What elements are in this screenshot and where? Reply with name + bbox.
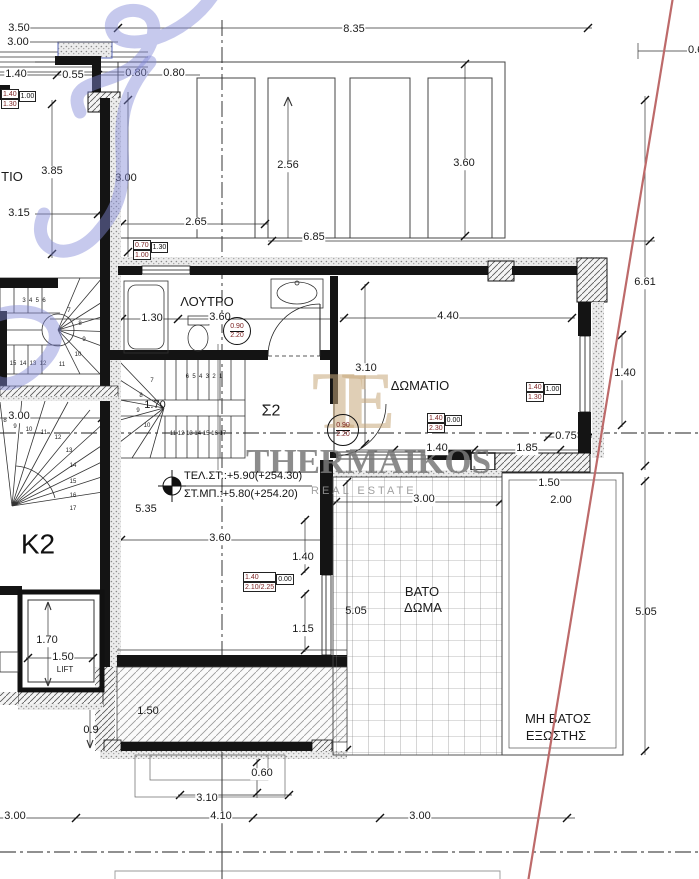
- door-height: 2.20: [336, 431, 350, 439]
- marker-height: 2.30: [427, 423, 445, 433]
- dim-080-b: 0.80: [162, 68, 185, 80]
- stair-numbers-left-top: 3 4 5 6: [22, 298, 45, 304]
- dim-310-bottom: 3.10: [195, 793, 218, 805]
- marker-width: 1.40: [526, 382, 544, 392]
- stair-number: 8: [139, 393, 142, 399]
- dim-505-right: 5.05: [634, 607, 657, 619]
- stair-number: 8: [78, 321, 81, 327]
- dim-360-roof: 3.60: [452, 158, 475, 170]
- opening-marker-1: 1.401.30 1.00: [1, 89, 36, 109]
- dim-300-wall: 3.00: [114, 173, 137, 185]
- dim-185: 1.85: [515, 443, 538, 455]
- dim-140-window: 1.40: [613, 368, 636, 380]
- dim-300-bottom-right: 3.00: [408, 811, 431, 823]
- marker-width: 1.40: [1, 89, 19, 99]
- dim-300-stair: 3.00: [7, 411, 30, 423]
- dim-top-span: 8.35: [342, 24, 365, 36]
- door-tag-bath: 0.90 2.20: [223, 317, 251, 345]
- balcony-label-2: ΕΞΩΣΤΗΣ: [525, 729, 587, 743]
- level-line-1: ΤΕΛ.ΣΤ.:+5.90(+254.30): [184, 471, 302, 482]
- dim-300-terrace: 3.00: [412, 494, 435, 506]
- stair-number: 9: [13, 424, 16, 430]
- stair-number: 8: [3, 418, 6, 424]
- marker-sill: 1.00: [19, 91, 37, 102]
- stair-label: Σ2: [261, 404, 282, 421]
- dim-350: 3.50: [7, 23, 30, 35]
- dim-090: 0.9: [82, 725, 99, 737]
- marker-sill: 1.30: [151, 242, 169, 253]
- brand-watermark-subtitle: REAL ESTATE: [311, 486, 417, 497]
- dim-310: 3.10: [354, 363, 377, 375]
- stair-number: 10: [26, 427, 33, 433]
- balcony-label-1: ΜΗ ΒΑΤΟΣ: [524, 712, 592, 726]
- floor-plan-canvas: TE THERMAIKOS REAL ESTATE 8.35 3.50 3.00…: [0, 0, 699, 879]
- stair-number: 16: [70, 493, 77, 499]
- stair-number: 15: [70, 479, 77, 485]
- marker-width: 0.70: [133, 240, 151, 250]
- stair-number: 17: [70, 506, 77, 512]
- dim-150-balcony: 1.50: [537, 478, 560, 490]
- marker-width: 1.40: [243, 572, 276, 582]
- dim-06-right: 0.6: [687, 45, 699, 57]
- toilet: [188, 316, 209, 325]
- marker-height: 2.10/2.25: [243, 582, 276, 592]
- stair-number: 13: [66, 448, 73, 454]
- dim-385: 3.85: [40, 166, 63, 178]
- dim-075: 0.75: [554, 431, 577, 443]
- opening-marker-3: 1.401.30 1.00: [526, 382, 561, 402]
- dim-200-balcony: 2.00: [549, 495, 572, 507]
- stair-number: 7: [150, 378, 153, 384]
- door-width: 0.90: [336, 422, 350, 431]
- door-tag-bed: 0.90 2.20: [327, 414, 359, 446]
- dim-170-stair: 1.70: [143, 400, 166, 412]
- stair-number: 9: [136, 408, 139, 414]
- marker-height: 1.00: [133, 250, 151, 260]
- bedroom-label: ΔΩΜΑΤΙΟ: [390, 379, 451, 393]
- stair-number: 7: [67, 308, 70, 314]
- stair-numbers-left-bottom: 15 14 13 12: [10, 361, 47, 367]
- dim-505-left: 5.05: [344, 606, 367, 618]
- stair-number: 12: [55, 435, 62, 441]
- opening-marker-4: 1.402.30 0.00: [427, 413, 462, 433]
- dim-115: 1.15: [291, 624, 314, 636]
- dim-265: 2.65: [184, 217, 207, 229]
- dim-060: 0.60: [250, 768, 273, 780]
- dim-410: 4.10: [209, 811, 232, 823]
- stair-numbers-k2-bottom: 11 12 13 14 15 16 17: [170, 431, 226, 437]
- dim-360-low: 3.60: [208, 533, 231, 545]
- opening-marker-5: 1.402.10/2.25 0.00: [243, 572, 294, 592]
- dim-170-lift: 1.70: [35, 635, 58, 647]
- dim-080-a: 0.80: [124, 68, 147, 80]
- dim-150-lift: 1.50: [51, 652, 74, 664]
- dim-150-balc2: 1.50: [136, 706, 159, 718]
- marker-sill: 0.00: [445, 415, 463, 426]
- dim-300-top: 3.00: [6, 37, 29, 49]
- stair-number: 9: [82, 337, 85, 343]
- stair-number: 10: [75, 352, 82, 358]
- dim-300-bottom-left: 3.00: [3, 811, 26, 823]
- dim-256: 2.56: [276, 160, 299, 172]
- marker-width: 1.40: [427, 413, 445, 423]
- dim-685: 6.85: [302, 232, 325, 244]
- stair-numbers-k2-top: 6 5 4 3 2 1: [186, 374, 223, 380]
- door-width: 0.90: [230, 323, 244, 332]
- opening-marker-2: 0.701.00 1.30: [133, 240, 168, 260]
- door-height: 2.20: [230, 332, 244, 340]
- dim-140-bed: 1.40: [425, 443, 448, 455]
- dim-315: 3.15: [7, 208, 30, 220]
- dim-661: 6.61: [633, 277, 656, 289]
- dim-055: 0.55: [61, 70, 84, 82]
- core-label: K2: [20, 529, 56, 558]
- parapet-outline: [58, 42, 112, 58]
- level-line-2: ΣΤ.ΜΠ.:+5.80(+254.20): [184, 489, 298, 500]
- dim-535: 5.35: [134, 504, 157, 516]
- marker-sill: 1.00: [544, 384, 562, 395]
- roof-terrace-label-1: ΒΑΤΟ: [404, 585, 440, 599]
- stair-number: 11: [59, 362, 65, 368]
- marker-height: 1.30: [526, 392, 544, 402]
- dim-140-left: 1.40: [4, 69, 27, 81]
- lift-label: LIFT: [56, 666, 74, 674]
- dim-130-bath: 1.30: [140, 313, 163, 325]
- stair-number: 10: [144, 423, 151, 429]
- marker-sill: 0.00: [276, 574, 294, 585]
- stair-number: 11: [41, 430, 47, 436]
- adjacent-room-label: ΤΙΟ: [0, 170, 24, 184]
- stair-number: 14: [70, 463, 77, 469]
- marker-height: 1.30: [1, 99, 19, 109]
- roof-terrace-label-2: ΔΩΜΑ: [403, 601, 443, 615]
- dim-440: 4.40: [436, 311, 459, 323]
- dim-140-low: 1.40: [291, 552, 314, 564]
- bathroom-label: ΛΟΥΤΡΟ: [179, 295, 235, 309]
